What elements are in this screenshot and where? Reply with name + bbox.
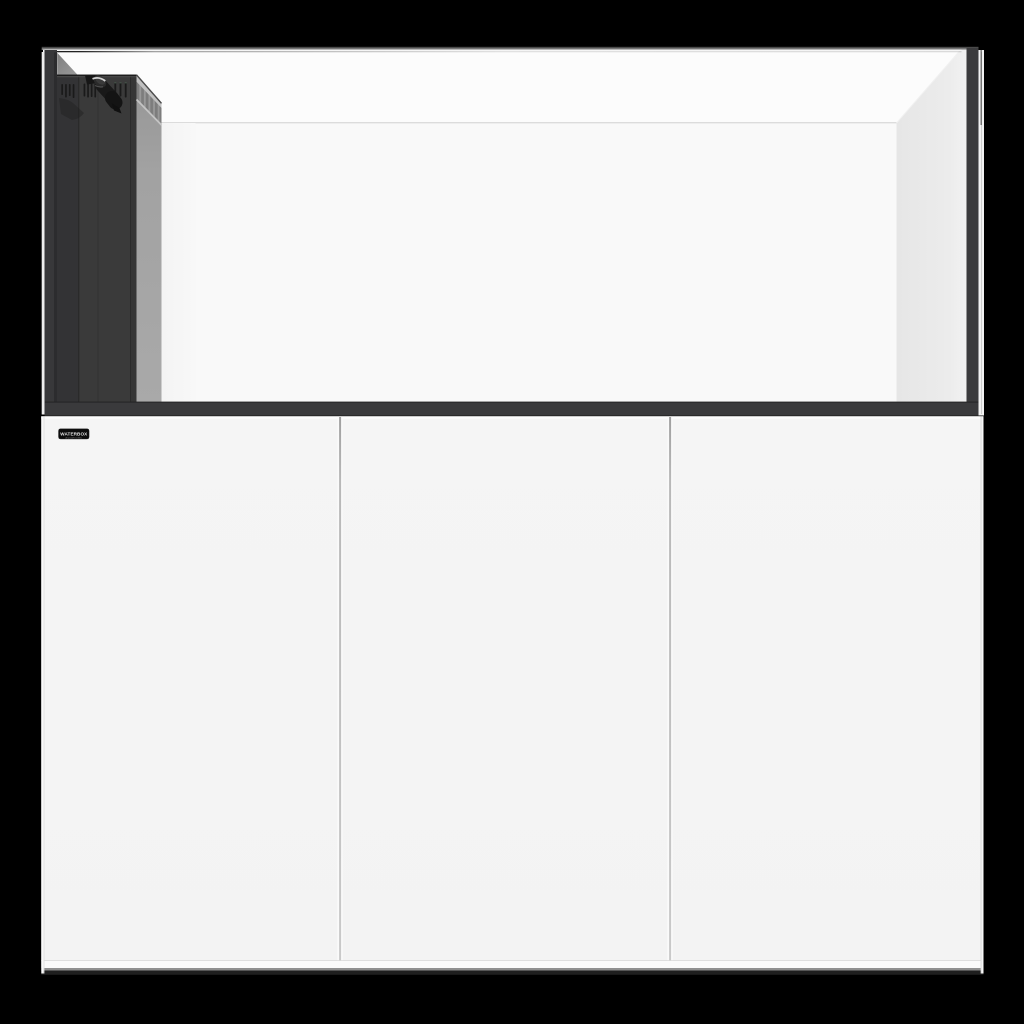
svg-text:WATERBOX: WATERBOX [60, 432, 88, 437]
svg-text:AQUARIUMS: AQUARIUMS [65, 436, 82, 439]
